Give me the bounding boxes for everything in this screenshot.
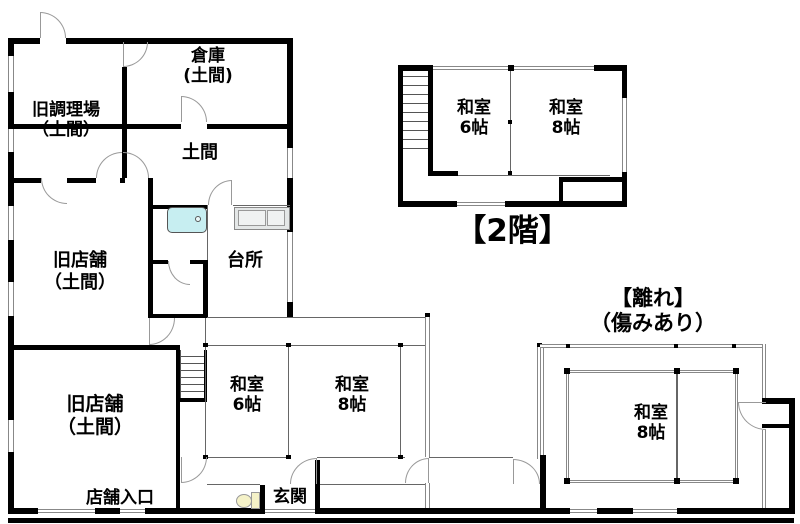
window bbox=[430, 66, 508, 70]
door-arc bbox=[168, 261, 190, 285]
staircase bbox=[403, 68, 428, 152]
wall-segment bbox=[762, 424, 790, 428]
room-wall bbox=[735, 370, 738, 483]
door-leaf bbox=[738, 402, 766, 403]
wall-segment bbox=[287, 302, 293, 318]
door-leaf bbox=[316, 458, 317, 484]
veranda-wall bbox=[425, 315, 430, 457]
window bbox=[287, 232, 293, 302]
wall-segment bbox=[622, 65, 627, 98]
post bbox=[674, 368, 680, 374]
room-label-kitchen: 台所 bbox=[213, 250, 277, 272]
wall-segment bbox=[398, 201, 457, 207]
entrance-sliding-door bbox=[265, 509, 315, 513]
door-leaf bbox=[40, 12, 41, 38]
window bbox=[622, 98, 627, 172]
wall-segment bbox=[8, 240, 14, 282]
wall-line bbox=[233, 205, 290, 206]
post bbox=[674, 344, 678, 348]
wall-segment bbox=[66, 38, 293, 44]
closet-wall bbox=[559, 182, 563, 201]
window bbox=[120, 509, 145, 513]
wall-line bbox=[205, 318, 206, 457]
room-label-storage: 倉庫 (土間) bbox=[163, 46, 253, 87]
veranda-wall bbox=[425, 483, 430, 508]
bathtub-drain-icon bbox=[195, 216, 201, 222]
wall-line bbox=[317, 457, 405, 458]
wall-segment bbox=[8, 316, 14, 420]
wall-segment bbox=[148, 260, 168, 264]
door-leaf bbox=[428, 458, 429, 483]
post bbox=[733, 368, 739, 374]
door-arc bbox=[41, 178, 67, 204]
wall-segment bbox=[178, 398, 207, 402]
veranda-wall bbox=[540, 344, 762, 348]
door-leaf bbox=[123, 42, 124, 67]
post bbox=[566, 344, 570, 348]
wall-segment bbox=[260, 485, 265, 514]
wall-segment bbox=[67, 178, 96, 183]
door-arc bbox=[123, 152, 149, 178]
room-wall bbox=[566, 370, 738, 373]
post bbox=[286, 343, 291, 347]
wall-line bbox=[400, 345, 401, 457]
wall-segment bbox=[207, 124, 293, 129]
door-arc bbox=[738, 402, 766, 430]
door-arc bbox=[123, 42, 148, 67]
window bbox=[8, 282, 14, 316]
post bbox=[398, 343, 403, 347]
door-arc bbox=[208, 180, 232, 205]
wall-segment bbox=[8, 508, 38, 514]
room-wall bbox=[566, 480, 738, 483]
wall-segment bbox=[8, 345, 180, 350]
wall-line bbox=[207, 484, 260, 485]
door-arc bbox=[40, 12, 66, 38]
floor-plan: 倉庫 (土間) 旧調理場 （土間） 土間 旧店舗 （土間） 台所 旧店舗 （土間… bbox=[0, 0, 800, 524]
door-leaf bbox=[149, 318, 150, 345]
kitchen-counter-section bbox=[267, 210, 285, 226]
wall-segment bbox=[148, 178, 153, 318]
room-label-doma: 土間 bbox=[168, 142, 232, 164]
door-arc bbox=[181, 96, 207, 122]
wall-line bbox=[205, 345, 429, 346]
toilet-tank-icon bbox=[251, 492, 260, 509]
door-arc bbox=[181, 457, 207, 483]
door-leaf bbox=[181, 96, 182, 122]
room-label-entrance: 玄関 bbox=[266, 487, 314, 507]
window bbox=[38, 509, 95, 513]
wall-segment bbox=[597, 508, 633, 514]
post bbox=[203, 343, 208, 347]
veranda-wall bbox=[540, 348, 544, 455]
wall-line bbox=[320, 484, 425, 485]
door-arc bbox=[149, 318, 175, 345]
door-arc bbox=[290, 458, 317, 484]
room-wall bbox=[566, 370, 569, 483]
door-arc bbox=[405, 458, 429, 483]
room-label-old-shop-upper: 旧店舗 （土間） bbox=[25, 250, 135, 293]
wall-segment bbox=[95, 508, 120, 514]
post bbox=[733, 478, 739, 484]
window bbox=[633, 509, 677, 513]
wall-segment bbox=[429, 508, 540, 514]
window bbox=[514, 66, 594, 70]
window bbox=[8, 56, 14, 92]
window bbox=[287, 148, 293, 178]
wall-segment bbox=[540, 508, 570, 514]
wall-segment bbox=[677, 508, 795, 514]
veranda-wall bbox=[762, 344, 766, 398]
door-arc bbox=[513, 459, 540, 484]
post bbox=[286, 455, 291, 459]
wall-line bbox=[429, 457, 513, 458]
wall-line bbox=[207, 205, 208, 260]
label-shop-entrance: 店舗入口 bbox=[72, 488, 168, 508]
room-label-washitsu8-1f: 和室 8帖 bbox=[327, 375, 377, 416]
wall-segment bbox=[287, 38, 293, 148]
room-label-old-shop-lower: 旧店舗 （土間） bbox=[35, 393, 155, 439]
wall-line bbox=[207, 457, 290, 458]
post bbox=[564, 368, 570, 374]
wall-segment bbox=[122, 67, 127, 124]
wall-segment bbox=[505, 201, 627, 207]
room-label-washitsu8-annex: 和室 8帖 bbox=[625, 403, 677, 444]
caption-2f: 【2階】 bbox=[455, 214, 570, 248]
wall-segment bbox=[8, 38, 14, 56]
window bbox=[8, 420, 14, 452]
wall-line bbox=[207, 317, 427, 318]
door-leaf bbox=[181, 457, 182, 483]
ground-line bbox=[8, 518, 794, 523]
closet-wall bbox=[559, 177, 622, 182]
bathtub-icon bbox=[167, 207, 207, 233]
door-leaf bbox=[513, 459, 514, 484]
wall-segment bbox=[8, 178, 41, 183]
wall-segment bbox=[145, 508, 265, 514]
staircase bbox=[180, 350, 206, 398]
room-label-washitsu6-1f: 和室 6帖 bbox=[222, 375, 272, 416]
post bbox=[564, 478, 570, 484]
wall-segment bbox=[428, 171, 458, 176]
wall-segment bbox=[315, 508, 429, 514]
post bbox=[398, 455, 403, 459]
post bbox=[120, 178, 125, 183]
window bbox=[8, 206, 14, 240]
room-label-washitsu6-2f: 和室 6帖 bbox=[448, 98, 500, 139]
wall-segment bbox=[789, 404, 795, 514]
veranda-wall bbox=[762, 430, 766, 508]
window bbox=[457, 202, 505, 206]
post bbox=[732, 344, 736, 348]
door-leaf bbox=[231, 180, 232, 205]
room-label-washitsu8-2f: 和室 8帖 bbox=[540, 98, 592, 139]
door-arc bbox=[96, 152, 122, 178]
wall-line bbox=[432, 175, 610, 176]
post bbox=[425, 313, 430, 317]
room-label-old-cooking-area: 旧調理場 （土間） bbox=[10, 100, 122, 141]
toilet-icon bbox=[236, 494, 252, 508]
caption-annex: 【離れ】 （傷みあり） bbox=[572, 286, 734, 336]
window bbox=[570, 509, 597, 513]
wall-segment bbox=[428, 65, 433, 173]
wall-segment bbox=[203, 260, 208, 318]
wall-segment bbox=[540, 455, 546, 508]
wall-segment bbox=[8, 452, 14, 514]
post bbox=[674, 478, 680, 484]
post bbox=[508, 120, 512, 124]
wall-line bbox=[288, 345, 289, 457]
kitchen-sink-icon bbox=[238, 210, 266, 226]
